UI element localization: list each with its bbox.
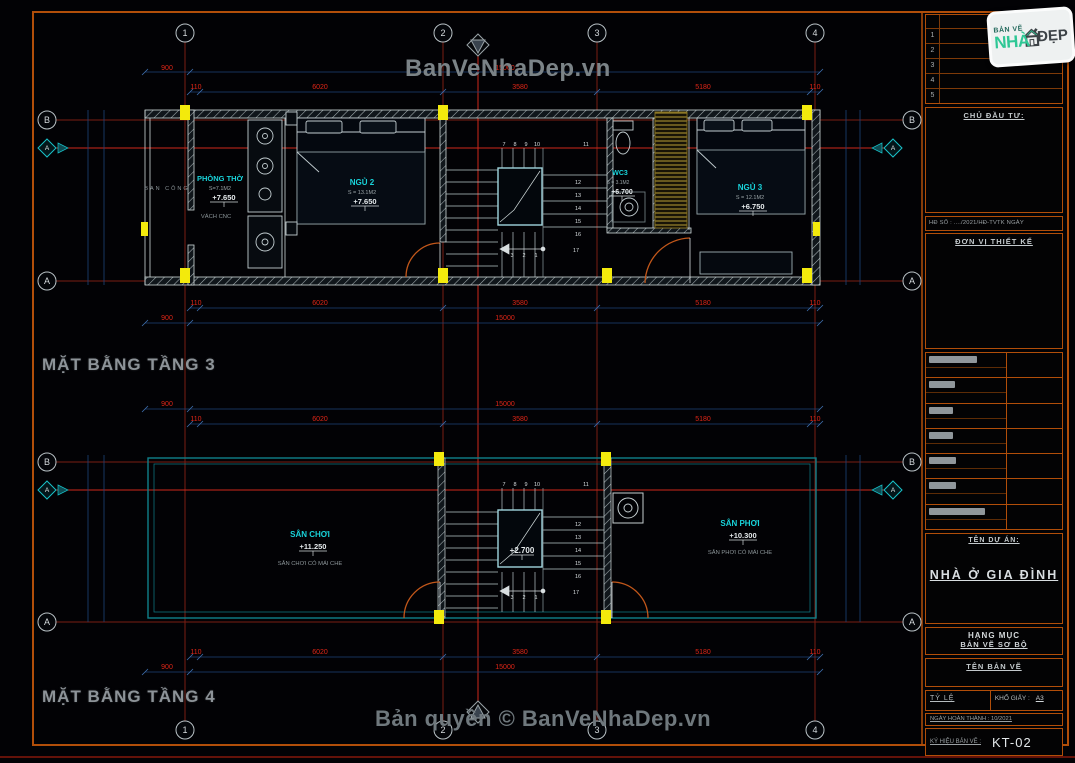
dim-total-f3bot: 15000 xyxy=(495,315,515,322)
f4-step-3: 3 xyxy=(510,595,513,601)
f4-step-14: 14 xyxy=(575,548,581,554)
balcony-label: BAN CÔNG xyxy=(144,185,189,192)
f3-step-7: 7 xyxy=(502,142,505,148)
room-phoi-level: +10.300 xyxy=(729,531,756,540)
grid-row-A1r: A xyxy=(909,276,915,286)
grid-row-A2: A xyxy=(44,617,50,627)
signature-row xyxy=(926,454,1062,479)
dim-total-f4bot: 15000 xyxy=(495,664,515,671)
room-ngu2-name: NGỦ 2 xyxy=(350,178,375,187)
category-box: HẠNG MỤC BẢN VẼ SƠ BỘ xyxy=(925,627,1063,655)
grid-col-2b: 2 xyxy=(440,725,445,735)
f4-step-10: 10 xyxy=(534,482,540,488)
f4-step-9: 9 xyxy=(524,482,527,488)
grid-row-B2: B xyxy=(44,457,50,467)
dim-110a-f4top: 110 xyxy=(190,416,201,423)
dim-900-f3bot: 900 xyxy=(161,315,173,322)
dim-900-f4top: 900 xyxy=(161,401,173,408)
f3-step-3: 3 xyxy=(510,253,513,259)
redacted-label xyxy=(929,407,953,414)
f4-step-12: 12 xyxy=(575,522,581,528)
wall-note: VÁCH CNC xyxy=(201,213,231,220)
grid-col-3b: 3 xyxy=(594,725,599,735)
scale-label: TỶ LỆ xyxy=(930,695,954,702)
logo-text-nha: NHÀ xyxy=(994,32,1030,51)
room-ngu3-level: +6.750 xyxy=(741,202,764,211)
dim-110a-f4bot: 110 xyxy=(190,649,201,656)
bed-ngu2 xyxy=(286,112,425,235)
dim-6020-f4top: 6020 xyxy=(312,416,328,423)
f4-step-16: 16 xyxy=(575,574,581,580)
project-name-label: TÊN DỰ ÁN: xyxy=(926,534,1062,544)
section-letter-1: A xyxy=(45,145,50,152)
room-ngu3-area: S = 12.1M2 xyxy=(736,195,764,201)
grid-row-A2r: A xyxy=(909,617,915,627)
design-unit-label: ĐƠN VỊ THIẾT KẾ xyxy=(926,234,1062,246)
completion-date: NGÀY HOÀN THÀNH : 10/2021 xyxy=(926,714,1062,722)
grid-col-1b: 1 xyxy=(182,725,187,735)
category-value: BẢN VẼ SƠ BỘ xyxy=(926,640,1062,649)
client-label: CHỦ ĐẦU TƯ: xyxy=(926,108,1062,120)
section-letter-3: A xyxy=(45,487,50,494)
dim-110b-f4top: 110 xyxy=(809,416,820,423)
signature-row xyxy=(926,378,1062,403)
dim-3580-f4top: 3580 xyxy=(512,416,528,423)
redacted-label xyxy=(929,457,956,464)
dim-3580-f3bot: 3580 xyxy=(512,300,528,307)
revision-number: 4 xyxy=(926,74,940,88)
signature-row xyxy=(926,404,1062,429)
f3-step-2: 2 xyxy=(522,253,525,259)
room-choi-name: SÂN CHƠI xyxy=(290,530,330,539)
dim-5180-f4top: 5180 xyxy=(695,416,711,423)
drawing-name-box: TÊN BẢN VẼ xyxy=(925,658,1063,687)
wardrobe-strip xyxy=(655,112,687,228)
completion-date-box: NGÀY HOÀN THÀNH : 10/2021 xyxy=(925,713,1063,726)
f3-step-14: 14 xyxy=(575,206,581,212)
design-unit-box: ĐƠN VỊ THIẾT KẾ xyxy=(925,233,1063,349)
washbasin-icon xyxy=(612,192,645,222)
room-ngu3-name: NGỦ 3 xyxy=(738,183,763,192)
room-wc3-name: WC3 xyxy=(612,170,628,177)
f3-step-12: 12 xyxy=(575,180,581,186)
grid-row-A1: A xyxy=(44,276,50,286)
section-letter-4: A xyxy=(891,487,896,494)
f4-step-8: 8 xyxy=(513,482,516,488)
grid-row-B1r: B xyxy=(909,115,915,125)
section-letter-2: A xyxy=(891,145,896,152)
client-box: CHỦ ĐẦU TƯ: xyxy=(925,107,1063,213)
floor4-title: MẶT BẰNG TẦNG 4 xyxy=(42,687,216,707)
signature-row xyxy=(926,479,1062,504)
f3-step-17: 17 xyxy=(573,248,579,254)
f4-step-2: 2 xyxy=(522,595,525,601)
floor3-doors xyxy=(406,238,690,283)
grid-row-B2r: B xyxy=(909,457,915,467)
room-tho-level: +7.650 xyxy=(212,193,235,202)
washing-machine-icon xyxy=(613,493,643,523)
room-tho-name: PHÒNG THỜ xyxy=(197,174,244,183)
dim-6020-f3top: 6020 xyxy=(312,84,328,91)
dim-110b-f3bot: 110 xyxy=(809,300,820,307)
room-phoi-name: SÂN PHƠI xyxy=(720,519,759,528)
floor-plan-drawing: 1 2 3 4 1 2 3 4 B A B A B A B A A A A xyxy=(0,0,1075,763)
paper-size-value: A3 xyxy=(1036,695,1044,702)
project-name: NHÀ Ở GIA ĐÌNH xyxy=(926,568,1062,582)
revision-header-num xyxy=(926,15,940,28)
grid-col-2: 2 xyxy=(440,28,445,38)
dim-900-f3top: 900 xyxy=(161,65,173,72)
drawing-code: KT-02 xyxy=(992,735,1032,750)
f3-step-13: 13 xyxy=(575,193,581,199)
scale-cell: TỶ LỆ xyxy=(926,691,991,710)
floor3-title: MẶT BẰNG TẦNG 3 xyxy=(42,355,216,375)
f3-step-15: 15 xyxy=(575,219,581,225)
revision-number: 5 xyxy=(926,89,940,103)
f3-step-16: 16 xyxy=(575,232,581,238)
f4-step-1: 1 xyxy=(534,595,537,601)
signature-row xyxy=(926,353,1062,378)
f4-step-17: 17 xyxy=(573,590,579,596)
dim-5180-f3bot: 5180 xyxy=(695,300,711,307)
dim-6020-f3bot: 6020 xyxy=(312,300,328,307)
revision-row: 4 xyxy=(926,74,1062,89)
floor4-walls xyxy=(148,458,816,618)
f3-step-11: 11 xyxy=(583,142,589,148)
title-block: 1 2 3 4 5 CHỦ ĐẦU TƯ: HĐ SỐ : ..../2021/… xyxy=(924,12,1066,745)
dim-110a-f3bot: 110 xyxy=(190,300,201,307)
revision-number: 1 xyxy=(926,29,940,43)
f3-step-1: 1 xyxy=(534,253,537,259)
room-choi-level: +11.250 xyxy=(300,542,327,551)
redacted-label xyxy=(929,508,985,515)
grid-col-3: 3 xyxy=(594,28,599,38)
room-wc3-area: S = 3.1M2 xyxy=(607,180,630,186)
room-ngu2-level: +7.650 xyxy=(353,197,376,206)
dim-110b-f3top: 110 xyxy=(809,84,820,91)
grid-col-1: 1 xyxy=(182,28,187,38)
drawing-code-box: KÝ HIỆU BẢN VẼ : KT-02 xyxy=(925,728,1063,756)
revision-row: 5 xyxy=(926,89,1062,103)
paper-size-label: KHỔ GIẤY : xyxy=(995,695,1030,702)
paper-size-cell: KHỔ GIẤY :A3 xyxy=(991,691,1062,710)
f3-step-9: 9 xyxy=(524,142,527,148)
grid-row-B1: B xyxy=(44,115,50,125)
dim-110b-f4bot: 110 xyxy=(809,649,820,656)
category-label: HẠNG MỤC xyxy=(926,628,1062,640)
f4-step-13: 13 xyxy=(575,535,581,541)
dim-3580-f3top: 3580 xyxy=(512,84,528,91)
scale-box: TỶ LỆ KHỔ GIẤY :A3 xyxy=(925,690,1063,711)
contract-box: HĐ SỐ : ..../2021/HĐ-TVTK NGÀY xyxy=(925,216,1063,231)
f4-step-15: 15 xyxy=(575,561,581,567)
toilet-icon xyxy=(613,121,633,154)
redacted-label xyxy=(929,381,955,388)
drawing-name-label: TÊN BẢN VẼ xyxy=(926,659,1062,671)
f4-step-11: 11 xyxy=(583,482,589,488)
dim-5180-f3top: 5180 xyxy=(695,84,711,91)
banvenhadep-logo: BẢN VẼ NHÀ ĐẸP xyxy=(986,6,1075,68)
dim-6020-f4bot: 6020 xyxy=(312,649,328,656)
redacted-label xyxy=(929,482,956,489)
dim-900-f4bot: 900 xyxy=(161,664,173,671)
revision-number: 2 xyxy=(926,44,940,58)
room-choi-note: SÂN CHƠI CÓ MÁI CHE xyxy=(278,560,343,567)
stair-level-label: +2.700 xyxy=(510,546,535,555)
room-wc3-level: +6.700 xyxy=(611,189,633,196)
logo-text-dep: ĐẸP xyxy=(1037,26,1069,45)
cad-sheet: 1 2 3 4 1 2 3 4 B A B A B A B A A A A xyxy=(0,0,1075,763)
room-tho-area: S=7.1M2 xyxy=(209,186,231,192)
dim-3580-f4bot: 3580 xyxy=(512,649,528,656)
room-phoi-note: SÂN PHƠI CÓ MÁI CHE xyxy=(708,549,772,556)
grid-col-4b: 4 xyxy=(812,725,817,735)
signature-table xyxy=(925,352,1063,530)
dim-5180-f4bot: 5180 xyxy=(695,649,711,656)
f4-step-7: 7 xyxy=(502,482,505,488)
f3-step-10: 10 xyxy=(534,142,540,148)
grid-col-4: 4 xyxy=(812,28,817,38)
dim-total-f3top: 15000 xyxy=(495,65,515,72)
dim-total-f4top: 15000 xyxy=(495,401,515,408)
drawing-code-label: KÝ HIỆU BẢN VẼ : xyxy=(926,739,992,745)
contract-number: HĐ SỐ : ..../2021/HĐ-TVTK NGÀY xyxy=(926,217,1062,226)
altar-cabinet xyxy=(248,120,282,268)
room-ngu2-area: S = 13.1M2 xyxy=(348,190,376,196)
signature-row xyxy=(926,429,1062,454)
redacted-label xyxy=(929,432,953,439)
f3-step-8: 8 xyxy=(513,142,516,148)
redacted-label xyxy=(929,356,977,363)
signature-row xyxy=(926,505,1062,529)
floor3-stairs xyxy=(446,148,607,277)
dim-110a-f3top: 110 xyxy=(190,84,201,91)
project-name-box: TÊN DỰ ÁN: NHÀ Ở GIA ĐÌNH xyxy=(925,533,1063,624)
revision-number: 3 xyxy=(926,59,940,73)
